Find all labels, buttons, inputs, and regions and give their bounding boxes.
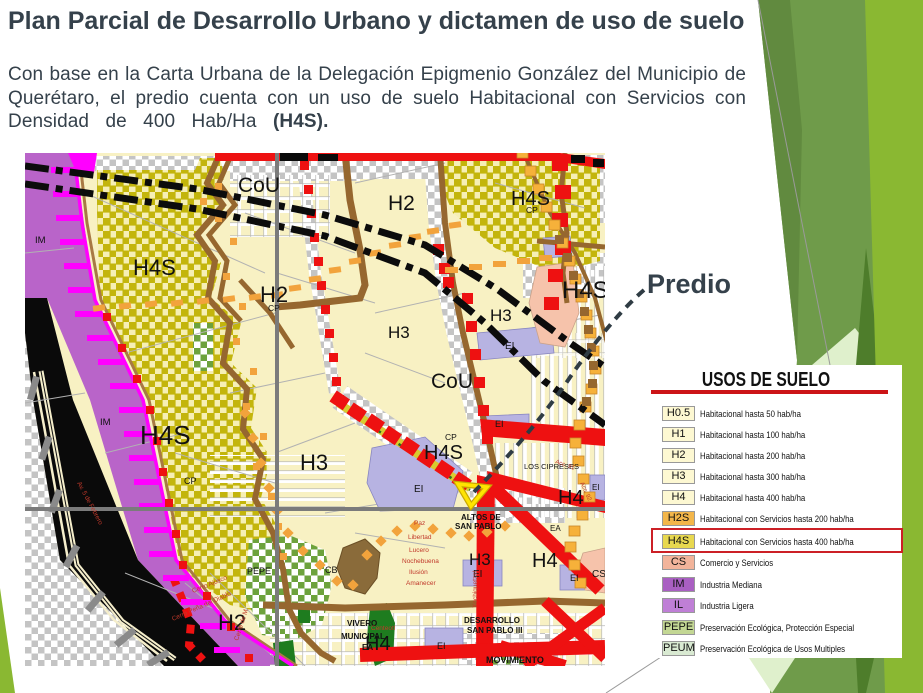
svg-text:H4: H4 <box>532 550 558 572</box>
svg-text:EA: EA <box>550 524 561 533</box>
svg-text:Xochiquetzal: Xochiquetzal <box>472 570 479 608</box>
svg-text:H3: H3 <box>300 450 328 475</box>
svg-text:CP: CP <box>445 432 457 442</box>
svg-text:CB: CB <box>325 565 338 575</box>
svg-text:H4: H4 <box>365 633 391 655</box>
svg-text:H4S: H4S <box>424 442 463 464</box>
svg-text:EI: EI <box>505 341 514 352</box>
svg-text:H3: H3 <box>469 550 491 569</box>
svg-text:EI: EI <box>570 573 579 583</box>
svg-text:Centeotl: Centeotl <box>371 625 396 632</box>
svg-text:H3: H3 <box>490 306 512 325</box>
svg-text:H4: H4 <box>558 487 584 509</box>
svg-text:CoU: CoU <box>431 370 473 393</box>
svg-text:CP: CP <box>268 303 280 313</box>
svg-text:IM: IM <box>100 417 111 428</box>
svg-text:SAN PABLO: SAN PABLO <box>455 522 502 531</box>
svg-text:H2: H2 <box>388 192 415 215</box>
svg-text:PEPE: PEPE <box>247 566 271 576</box>
svg-text:EI: EI <box>437 641 446 651</box>
svg-text:EI: EI <box>495 419 504 429</box>
svg-text:DESARROLLO: DESARROLLO <box>464 616 520 625</box>
svg-text:H4S: H4S <box>140 420 191 450</box>
svg-text:CS: CS <box>592 569 605 580</box>
svg-text:Amanecer: Amanecer <box>406 580 436 587</box>
svg-text:CP: CP <box>526 205 538 215</box>
svg-text:H4S: H4S <box>562 277 605 304</box>
svg-text:Paz: Paz <box>414 520 425 527</box>
svg-text:CoU: CoU <box>238 174 280 197</box>
svg-text:MOVIMIENTO: MOVIMIENTO <box>486 655 544 665</box>
svg-text:EI: EI <box>592 483 600 492</box>
svg-text:H3: H3 <box>388 323 410 342</box>
svg-text:Lucero: Lucero <box>409 547 429 554</box>
svg-text:EI: EI <box>414 484 423 495</box>
svg-text:SAN PABLO III: SAN PABLO III <box>467 626 522 635</box>
svg-text:CP: CP <box>184 476 197 486</box>
svg-text:H4S: H4S <box>133 255 176 280</box>
svg-text:ALTOS DE: ALTOS DE <box>461 513 501 522</box>
svg-text:Nochebuena: Nochebuena <box>402 558 439 565</box>
svg-text:Ilusión: Ilusión <box>409 569 428 576</box>
svg-text:Libertad: Libertad <box>408 534 432 541</box>
svg-text:IM: IM <box>35 235 46 246</box>
